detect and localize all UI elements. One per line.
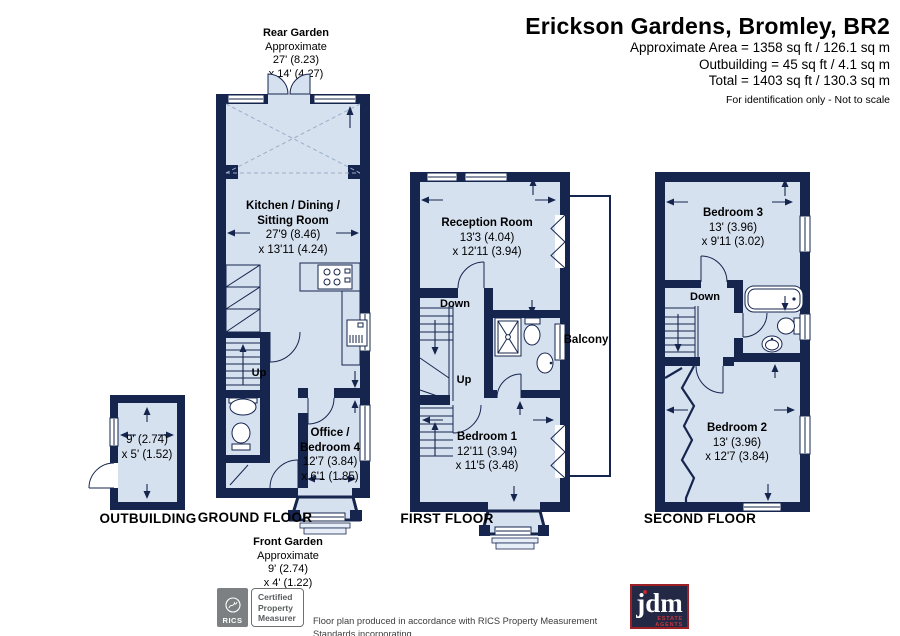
cert-line-1: Certified xyxy=(258,592,303,603)
front-garden-note: Approximate xyxy=(253,550,323,564)
footer-smallprint: Floor plan produced in accordance with R… xyxy=(313,589,628,636)
rics-logo: RICS xyxy=(217,588,248,627)
front-garden-dim1: 9' (2.74) xyxy=(253,563,323,577)
certified-property-measurer-badge: Certified Property Measurer xyxy=(251,588,304,627)
bedroom1-dim2: x 11'5 (3.48) xyxy=(432,459,542,474)
shower-icon xyxy=(495,318,521,356)
kitchen-dim1: 27'9 (8.46) xyxy=(227,228,359,243)
reception-name: Reception Room xyxy=(427,216,547,231)
stairs-up-label-ground: Up xyxy=(252,367,267,379)
room-label-bedroom3: Bedroom 3 13' (3.96) x 9'11 (3.02) xyxy=(678,206,788,250)
rear-garden-name: Rear Garden xyxy=(263,27,329,41)
sink-icon xyxy=(229,398,257,415)
floor-label-outbuilding: OUTBUILDING xyxy=(99,511,196,526)
bedroom2-name: Bedroom 2 xyxy=(682,421,792,436)
jdm-j-dot xyxy=(643,590,647,594)
office-dim2: x 6'1 (1.85) xyxy=(287,470,373,485)
rics-crest-icon xyxy=(224,596,242,616)
rear-garden-dim1: 27' (8.23) xyxy=(263,54,329,68)
rear-door-icon xyxy=(268,74,310,94)
jdm-logo: jdm ESTATE AGENTS xyxy=(630,584,689,629)
cert-line-2: Property xyxy=(258,603,303,614)
cert-line-3: Measurer xyxy=(258,613,303,624)
stairs-up-label-first: Up xyxy=(457,374,472,386)
room-label-office: Office / Bedroom 4 12'7 (3.84) x 6'1 (1.… xyxy=(287,426,373,484)
balcony-label: Balcony xyxy=(564,334,609,346)
front-garden-label: Front Garden Approximate 9' (2.74) x 4' … xyxy=(253,536,323,590)
door-arc xyxy=(89,463,118,488)
floor-label-ground: GROUND FLOOR xyxy=(198,510,313,525)
room-label-outbuilding: 9' (2.74) x 5' (1.52) xyxy=(102,433,192,462)
bedroom3-dim2: x 9'11 (3.02) xyxy=(678,235,788,250)
page-title: Erickson Gardens, Bromley, BR2 xyxy=(525,13,890,40)
stairs-down-label-first: Down xyxy=(440,298,470,310)
bedroom2-dim1: 13' (3.96) xyxy=(682,436,792,451)
reception-dim2: x 12'11 (3.94) xyxy=(427,245,547,260)
floorplan-page: Erickson Gardens, Bromley, BR2 Approxima… xyxy=(0,0,900,636)
header: Erickson Gardens, Bromley, BR2 Approxima… xyxy=(525,13,890,106)
bedroom2-dim2: x 12'7 (3.84) xyxy=(682,450,792,465)
area-line-1: Approximate Area = 1358 sq ft / 126.1 sq… xyxy=(525,40,890,57)
sink-icon xyxy=(762,336,782,352)
area-line-2: Outbuilding = 45 sq ft / 4.1 sq m xyxy=(525,57,890,74)
disclaimer: For identification only - Not to scale xyxy=(525,94,890,106)
smallprint-line-1: Floor plan produced in accordance with R… xyxy=(313,615,628,636)
room-label-bedroom1: Bedroom 1 12'11 (3.94) x 11'5 (3.48) xyxy=(432,430,542,474)
area-line-3: Total = 1403 sq ft / 130.3 sq m xyxy=(525,73,890,90)
office-name: Office / Bedroom 4 xyxy=(287,426,373,455)
reception-dim1: 13'3 (4.04) xyxy=(427,231,547,246)
outbuilding-dim1: 9' (2.74) xyxy=(102,433,192,448)
kitchen-name: Kitchen / Dining / Sitting Room xyxy=(227,199,359,228)
jdm-name: jdm xyxy=(632,586,687,620)
rics-name: RICS xyxy=(223,616,243,625)
bedroom1-name: Bedroom 1 xyxy=(432,430,542,445)
kitchen-dim2: x 13'11 (4.24) xyxy=(227,243,359,258)
bedroom3-dim1: 13' (3.96) xyxy=(678,221,788,236)
room-label-reception: Reception Room 13'3 (4.04) x 12'11 (3.94… xyxy=(427,216,547,260)
bedroom1-dim1: 12'11 (3.94) xyxy=(432,445,542,460)
floor-label-first: FIRST FLOOR xyxy=(400,511,493,526)
stairs-down-label-second: Down xyxy=(690,291,720,303)
bathtub-icon xyxy=(745,286,803,312)
room-label-kitchen: Kitchen / Dining / Sitting Room 27'9 (8.… xyxy=(227,199,359,257)
outbuilding-dim2: x 5' (1.52) xyxy=(102,448,192,463)
rear-garden-note: Approximate xyxy=(263,41,329,55)
floor-label-second: SECOND FLOOR xyxy=(644,511,756,526)
appliance-icon xyxy=(347,320,367,346)
sink-icon xyxy=(537,353,553,373)
toilet-icon xyxy=(232,423,250,450)
toilet-icon xyxy=(524,318,540,345)
room-label-bedroom2: Bedroom 2 13' (3.96) x 12'7 (3.84) xyxy=(682,421,792,465)
bedroom3-name: Bedroom 3 xyxy=(678,206,788,221)
office-dim1: 12'7 (3.84) xyxy=(287,455,373,470)
hob-icon xyxy=(318,265,352,289)
toilet-icon xyxy=(778,318,801,334)
